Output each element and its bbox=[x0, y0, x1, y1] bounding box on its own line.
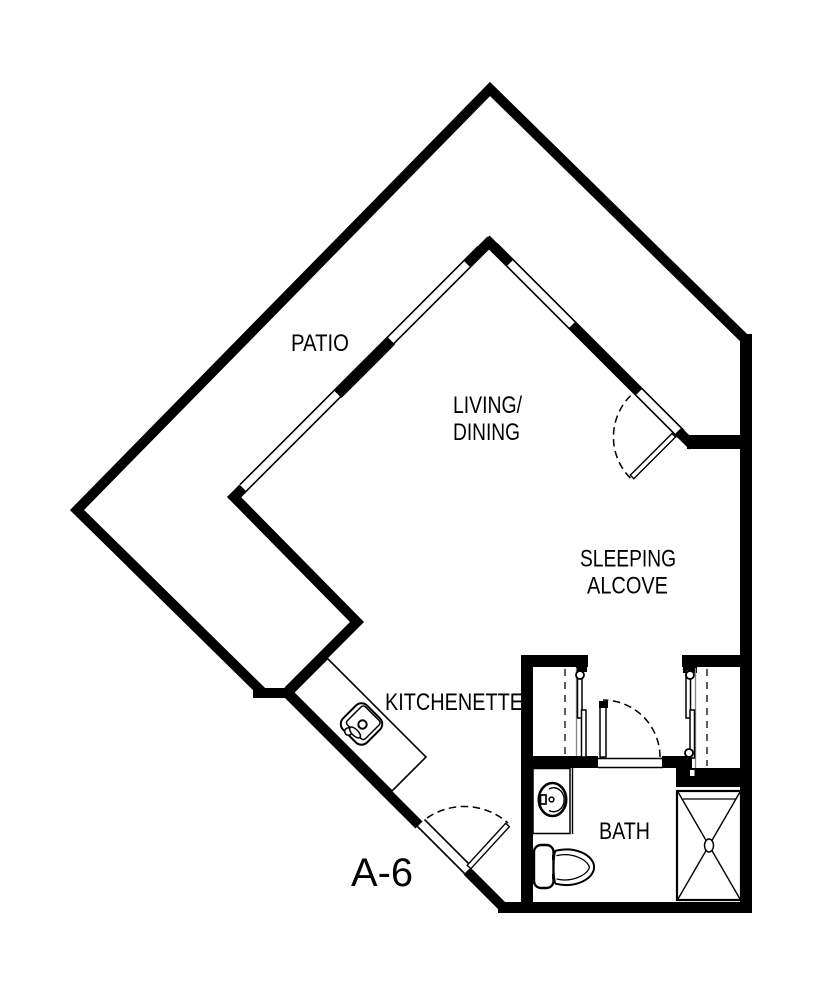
svg-text:BATH: BATH bbox=[599, 818, 650, 845]
svg-text:SLEEPING: SLEEPING bbox=[580, 546, 676, 573]
svg-text:A-6: A-6 bbox=[351, 851, 413, 895]
svg-text:PATIO: PATIO bbox=[291, 330, 349, 357]
svg-text:LIVING/: LIVING/ bbox=[453, 392, 522, 419]
svg-text:DINING: DINING bbox=[453, 419, 520, 446]
svg-text:KITCHENETTE: KITCHENETTE bbox=[385, 689, 523, 716]
svg-text:ALCOVE: ALCOVE bbox=[587, 573, 668, 600]
